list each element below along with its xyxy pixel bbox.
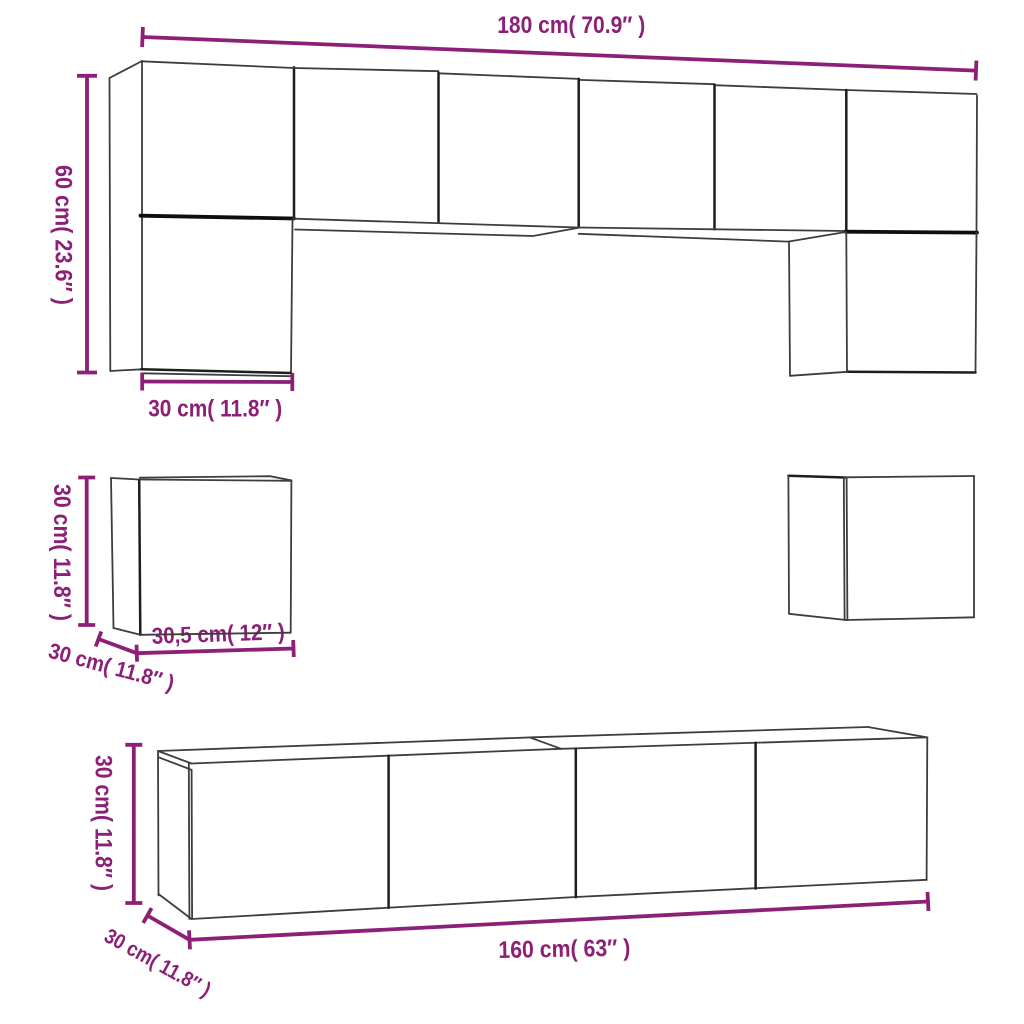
svg-text:30 cm( 11.8″ ): 30 cm( 11.8″ )	[48, 484, 75, 621]
svg-text:30 cm( 11.8″ ): 30 cm( 11.8″ )	[89, 755, 116, 891]
svg-text:180 cm( 70.9″ ): 180 cm( 70.9″ )	[497, 12, 645, 39]
svg-text:30 cm( 11.8″ ): 30 cm( 11.8″ )	[148, 396, 282, 423]
svg-text:30 cm( 11.8″ ): 30 cm( 11.8″ )	[100, 924, 214, 1001]
svg-text:60 cm( 23.6″ ): 60 cm( 23.6″ )	[50, 165, 77, 305]
svg-text:160 cm( 63″ ): 160 cm( 63″ )	[498, 935, 630, 964]
